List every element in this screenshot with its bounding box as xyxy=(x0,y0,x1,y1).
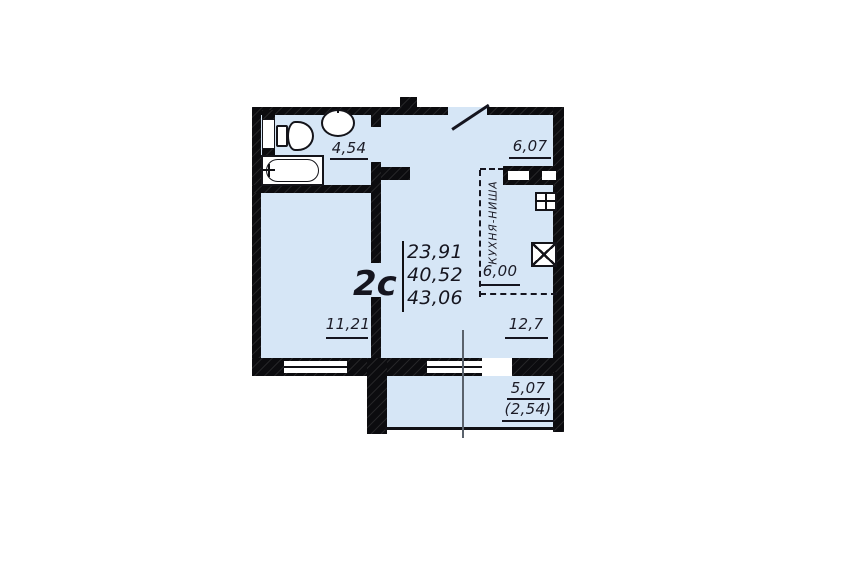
balcony-area-label: 5,07 xyxy=(505,379,551,397)
vent-shaft-niche xyxy=(262,119,275,149)
room-area-label: 12,7 xyxy=(503,315,549,333)
balcony-area-coefficient-label: (2,54) xyxy=(499,400,557,418)
kitchen-sink-cross-h xyxy=(535,200,556,202)
wall-entry-stub xyxy=(381,167,410,180)
balcony-parapet-line xyxy=(385,427,554,430)
washbasin-symbol xyxy=(321,109,355,137)
wall-inner-vertical-upper xyxy=(371,162,381,263)
balcony-area-coefficient-underline xyxy=(502,420,554,422)
kitchen-sink-symbol xyxy=(535,192,557,211)
living-room-area-label: 11,21 xyxy=(323,315,373,333)
area-summary-item: 23,91 xyxy=(407,241,463,264)
area-summary-item: 40,52 xyxy=(407,264,463,287)
kitchen-niche-area-label: 6,00 xyxy=(477,262,523,280)
area-summary-list: 23,91 40,52 43,06 xyxy=(407,241,463,310)
kitchen-counter-slot-1 xyxy=(508,171,529,180)
window-room xyxy=(427,361,482,373)
balcony-pillar xyxy=(367,358,387,434)
bathroom-area-underline xyxy=(330,158,368,160)
section-line xyxy=(462,330,464,438)
plan-type-label: 2с xyxy=(353,264,397,304)
bathroom-area-label: 4,54 xyxy=(326,139,372,157)
window-living-room xyxy=(284,361,347,373)
stove-symbol xyxy=(531,242,557,267)
washbasin-tap xyxy=(337,107,339,113)
bathtub-tap-h xyxy=(263,169,275,171)
kitchen-niche-boundary-bottom xyxy=(480,293,557,295)
kitchen-niche-area-underline xyxy=(479,284,520,286)
floor-plan-canvas: 4,54 6,07 КУХНЯ-НИША 6,00 11,21 12,7 5,0… xyxy=(0,0,863,572)
wall-corridor-stub xyxy=(400,97,417,107)
kitchen-niche-name-label: КУХНЯ-НИША xyxy=(488,175,501,271)
vent-shaft-stub-top xyxy=(262,110,275,119)
kitchen-counter-symbol xyxy=(503,166,560,185)
kitchen-niche-boundary-top xyxy=(480,168,504,170)
wall-inner-vertical-top-stub xyxy=(371,107,381,127)
living-room-area-underline xyxy=(326,337,368,339)
area-summary-divider xyxy=(402,241,404,312)
wall-bathroom-bottom xyxy=(252,185,381,193)
room-area-underline xyxy=(505,337,548,339)
kitchen-counter-slot-2 xyxy=(542,171,556,180)
wall-left xyxy=(252,107,261,376)
balcony-door-opening xyxy=(482,358,512,376)
area-summary-item: 43,06 xyxy=(407,287,463,310)
hallway-area-underline xyxy=(509,157,551,159)
hallway-area-label: 6,07 xyxy=(507,137,553,155)
